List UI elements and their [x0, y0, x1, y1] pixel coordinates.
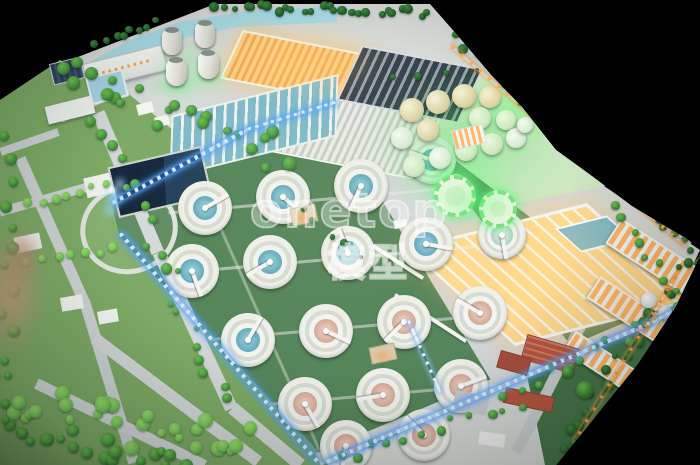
tree: [136, 456, 146, 465]
tree: [567, 134, 575, 142]
tree: [673, 288, 680, 295]
tree: [308, 8, 315, 15]
digester-tank: [426, 90, 450, 114]
tree: [562, 366, 574, 378]
tree: [591, 155, 598, 162]
tree: [68, 442, 79, 453]
tree: [244, 421, 258, 435]
tree: [557, 131, 566, 140]
tree: [390, 74, 396, 80]
digester-tank: [496, 110, 516, 130]
tree: [309, 217, 315, 223]
tree: [135, 84, 144, 93]
tree: [59, 398, 73, 412]
tree: [229, 439, 243, 453]
tree: [67, 76, 80, 89]
cooling-tower: [162, 29, 182, 55]
tree: [56, 252, 65, 261]
tree: [475, 51, 482, 58]
digester-tank: [400, 98, 424, 122]
tree: [519, 387, 526, 394]
tree: [9, 177, 19, 187]
clarifier-tank: [356, 368, 410, 422]
tree: [560, 445, 569, 454]
tree: [599, 157, 606, 164]
model-board: [0, 0, 700, 465]
digester-tank: [429, 147, 451, 169]
tree: [566, 424, 577, 435]
tree: [452, 31, 460, 39]
tree: [330, 7, 337, 14]
tree: [684, 258, 694, 268]
tree: [148, 215, 158, 225]
clarifier-tank: [321, 226, 375, 280]
cooling-tower: [166, 59, 187, 86]
tree: [198, 368, 208, 378]
tree: [418, 431, 424, 437]
tree: [532, 97, 538, 103]
thickener-glow: [426, 176, 526, 228]
cooling-tower: [195, 22, 215, 48]
photo-canvas: onetop 模型: [0, 0, 700, 465]
tree: [549, 124, 558, 133]
hand-blur: [2, 226, 42, 290]
tree: [330, 234, 336, 240]
tree: [108, 242, 118, 252]
tree: [437, 426, 447, 436]
tree: [111, 416, 123, 428]
tree: [164, 449, 176, 461]
tree: [118, 154, 127, 163]
tree: [0, 201, 12, 213]
tree: [161, 461, 169, 465]
tree: [5, 153, 17, 165]
cooling-tower-glow: [148, 44, 232, 84]
tree: [107, 140, 118, 151]
digester-tank: [517, 117, 533, 133]
tree: [4, 372, 11, 379]
tree: [340, 239, 348, 247]
tree: [359, 255, 363, 259]
tree: [403, 4, 413, 14]
tree: [519, 404, 527, 412]
tree: [484, 59, 493, 68]
tree: [495, 68, 502, 75]
tree: [601, 365, 611, 375]
tree: [533, 110, 542, 119]
tree: [142, 243, 149, 250]
digester-tank: [417, 119, 439, 141]
tree: [576, 381, 594, 399]
tree: [57, 435, 65, 443]
window-glow: [373, 350, 391, 362]
tree: [124, 441, 139, 456]
digester-tank: [403, 155, 425, 177]
tree: [361, 8, 370, 17]
tree: [262, 1, 271, 10]
tree: [399, 437, 407, 445]
tree: [581, 147, 588, 154]
tree: [1, 399, 11, 409]
tree: [221, 383, 229, 391]
tree: [248, 3, 255, 10]
tree: [125, 26, 132, 33]
tree: [81, 248, 89, 256]
tree: [2, 416, 10, 424]
cascade-glow: [102, 201, 118, 219]
tree: [529, 55, 535, 61]
tree: [221, 4, 228, 11]
tree: [40, 199, 48, 207]
tree: [443, 70, 449, 76]
tree: [499, 408, 505, 414]
tree: [283, 157, 296, 170]
tree: [611, 201, 620, 210]
tree: [353, 453, 363, 463]
tree: [29, 405, 42, 418]
tree: [12, 396, 25, 409]
tree: [141, 201, 151, 211]
tree: [387, 9, 396, 18]
tree: [108, 76, 117, 85]
tree: [175, 434, 183, 442]
tree: [161, 263, 172, 274]
tree: [222, 393, 232, 403]
sign-glow: [106, 185, 118, 195]
tree: [186, 105, 197, 116]
tree: [616, 183, 626, 193]
tree: [109, 445, 122, 458]
tree: [209, 2, 219, 12]
digester-tank: [391, 127, 413, 149]
tree: [261, 163, 270, 172]
tree: [498, 392, 507, 401]
tree: [90, 40, 98, 48]
tree: [624, 190, 631, 197]
digester-tank: [452, 84, 476, 108]
tree: [152, 17, 158, 23]
tree: [71, 57, 82, 68]
tree: [635, 238, 644, 247]
tree: [180, 459, 194, 465]
tree: [62, 192, 70, 200]
tree: [95, 397, 111, 413]
tree: [659, 277, 667, 285]
clarifier-tank: [377, 295, 431, 349]
tree: [632, 192, 638, 198]
tree: [136, 27, 143, 34]
tree: [193, 343, 201, 351]
tree: [57, 62, 70, 75]
clarifier-tank: [453, 286, 507, 340]
tree: [97, 250, 103, 256]
tree: [152, 120, 163, 131]
clarifier-tank: [178, 181, 232, 235]
tree: [66, 415, 74, 423]
tree: [497, 63, 503, 69]
tree: [81, 447, 93, 459]
clarifier-tank: [243, 235, 297, 289]
tree: [687, 247, 694, 254]
tree: [67, 425, 78, 436]
tree: [301, 207, 307, 213]
tree: [23, 198, 31, 206]
tree: [103, 37, 110, 44]
tree: [599, 164, 608, 173]
tree: [116, 99, 124, 107]
park-building: [97, 308, 119, 324]
digester-tank: [479, 86, 501, 108]
tree: [640, 203, 648, 211]
tree: [190, 441, 202, 453]
tree: [197, 117, 209, 129]
clarifier-tank: [299, 304, 353, 358]
tree: [287, 6, 294, 13]
cooling-tower: [198, 52, 219, 79]
tree: [173, 308, 179, 314]
